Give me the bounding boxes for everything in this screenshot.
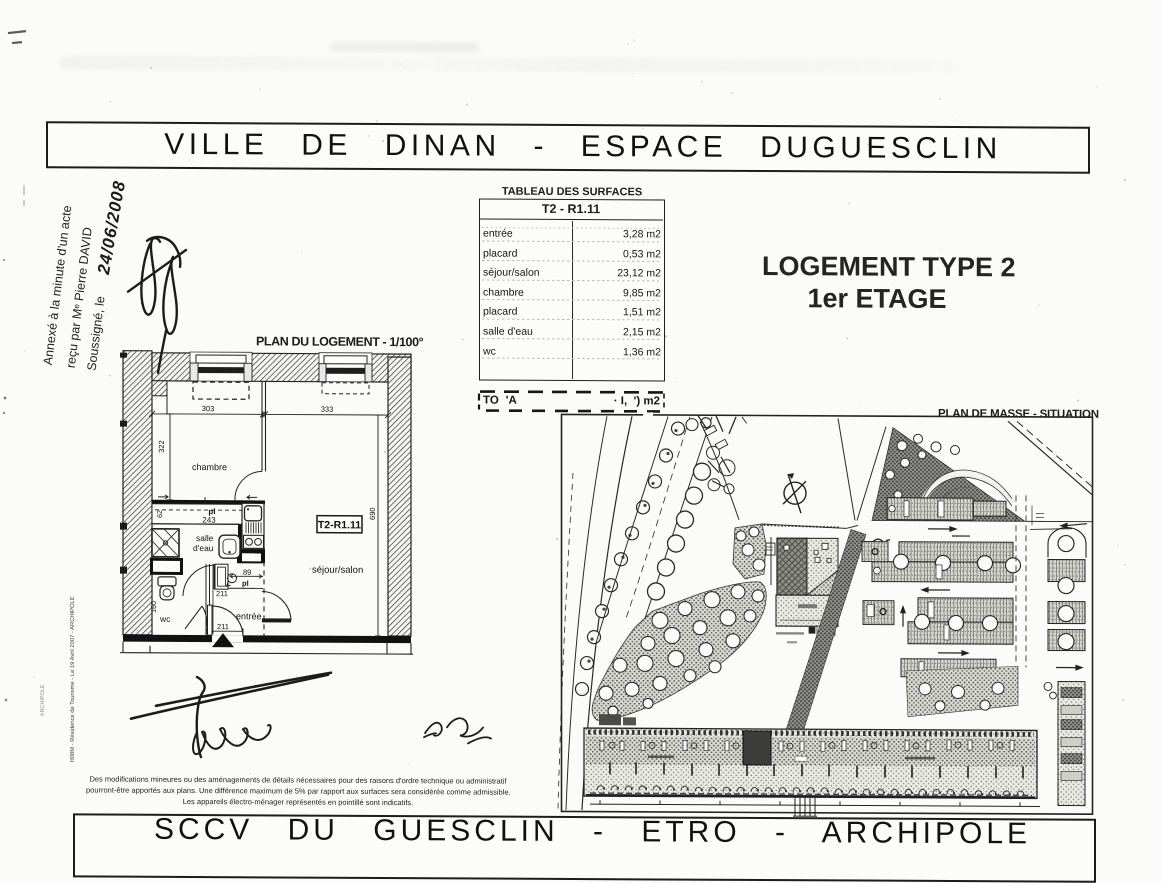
svg-text:322: 322 xyxy=(157,440,166,453)
svg-text:303: 303 xyxy=(202,404,215,413)
svg-text:160: 160 xyxy=(151,601,158,613)
svg-text:690: 690 xyxy=(368,507,377,520)
svg-text:211: 211 xyxy=(217,622,229,631)
svg-text:salle: salle xyxy=(196,533,214,543)
svg-text:211: 211 xyxy=(216,589,228,598)
svg-text:pl: pl xyxy=(242,579,249,588)
svg-text:chambre: chambre xyxy=(192,462,227,472)
svg-text:333: 333 xyxy=(321,405,334,414)
svg-text:d'eau: d'eau xyxy=(193,543,214,553)
svg-text:89: 89 xyxy=(243,568,251,577)
svg-text:62: 62 xyxy=(157,510,164,518)
svg-text:243: 243 xyxy=(202,516,216,525)
svg-text:entrée: entrée xyxy=(236,611,262,621)
svg-text:wc: wc xyxy=(159,614,171,624)
svg-text:séjour/salon: séjour/salon xyxy=(312,565,363,576)
svg-text:T2-R1.11: T2-R1.11 xyxy=(318,519,361,531)
